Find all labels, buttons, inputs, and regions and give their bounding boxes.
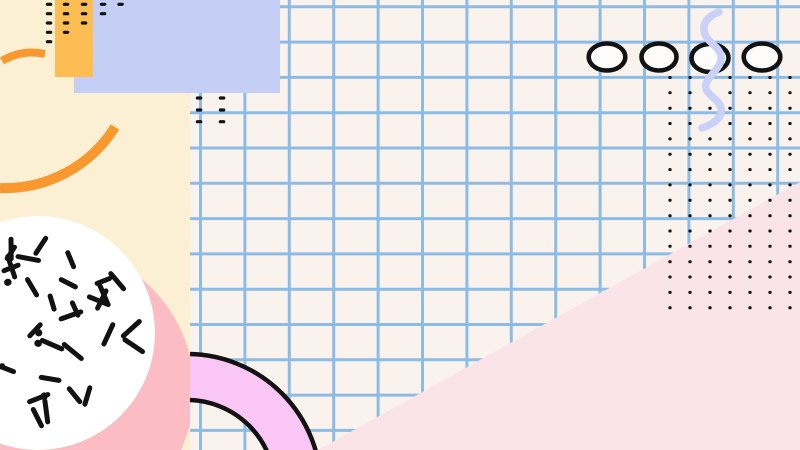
grid-dot xyxy=(708,291,711,294)
grid-dot xyxy=(788,306,791,309)
grid-dot xyxy=(748,183,751,186)
grid-dot xyxy=(688,306,691,309)
grid-dot xyxy=(748,230,751,233)
grid-dot xyxy=(708,276,711,279)
grid-dot xyxy=(668,291,671,294)
grid-dot xyxy=(768,245,771,248)
grid-dot xyxy=(748,91,751,94)
grid-dot xyxy=(688,137,691,140)
grid-dot xyxy=(728,230,731,233)
grid-dot xyxy=(708,183,711,186)
grid-dot xyxy=(708,107,711,110)
grid-dot xyxy=(788,168,791,171)
grid-dot xyxy=(728,168,731,171)
grid-dot xyxy=(668,260,671,263)
grid-dot xyxy=(708,245,711,248)
outlined-ellipse xyxy=(642,44,677,71)
grid-dot xyxy=(768,199,771,202)
corner-dot xyxy=(63,21,70,24)
grid-dot xyxy=(728,306,731,309)
grid-dot xyxy=(708,137,711,140)
grid-dot xyxy=(748,76,751,79)
grid-dot xyxy=(688,168,691,171)
memphis-abstract-background xyxy=(0,0,800,450)
sprinkle-dash xyxy=(41,377,59,380)
corner-dot xyxy=(63,3,70,6)
grid-dot xyxy=(688,91,691,94)
grid-dot xyxy=(768,230,771,233)
grid-dot xyxy=(728,137,731,140)
grid-dot xyxy=(788,291,791,294)
grid-dot xyxy=(668,91,671,94)
grid-dot xyxy=(668,76,671,79)
grid-dot xyxy=(728,91,731,94)
grid-dot xyxy=(768,153,771,156)
grid-dot xyxy=(668,137,671,140)
grid-dot xyxy=(668,107,671,110)
grid-dot xyxy=(688,107,691,110)
grid-dot xyxy=(688,214,691,217)
corner-dot xyxy=(81,3,88,6)
grid-dot xyxy=(768,276,771,279)
grid-dot xyxy=(688,183,691,186)
corner-dot xyxy=(117,3,124,6)
sprinkle-dash xyxy=(45,401,48,422)
corner-dot xyxy=(100,3,107,6)
grid-dot xyxy=(708,230,711,233)
corner-dot xyxy=(63,31,70,34)
grid-dot xyxy=(768,168,771,171)
grid-dot xyxy=(668,168,671,171)
grid-dot xyxy=(748,137,751,140)
grid-dot xyxy=(728,107,731,110)
grid-dot xyxy=(788,230,791,233)
corner-dot xyxy=(100,12,107,15)
cluster-dot xyxy=(219,96,226,99)
grid-dot xyxy=(748,306,751,309)
grid-dot xyxy=(768,76,771,79)
grid-dot xyxy=(788,183,791,186)
grid-dot xyxy=(788,276,791,279)
corner-dot xyxy=(46,12,53,15)
grid-dot xyxy=(748,153,751,156)
grid-dot xyxy=(728,153,731,156)
grid-dot xyxy=(668,214,671,217)
grid-dot xyxy=(728,183,731,186)
grid-dot xyxy=(788,122,791,125)
corner-dot xyxy=(46,3,53,6)
grid-dot xyxy=(748,291,751,294)
corner-dot xyxy=(81,12,88,15)
corner-dot xyxy=(46,31,53,34)
grid-dot xyxy=(788,137,791,140)
corner-dot xyxy=(63,12,70,15)
grid-dot xyxy=(728,260,731,263)
grid-dot xyxy=(668,122,671,125)
grid-dot xyxy=(688,122,691,125)
grid-dot xyxy=(668,230,671,233)
grid-dot xyxy=(788,245,791,248)
outlined-ellipse xyxy=(744,44,781,71)
cluster-dot xyxy=(219,108,226,111)
grid-dot xyxy=(728,276,731,279)
grid-dot xyxy=(768,291,771,294)
grid-dot xyxy=(788,214,791,217)
grid-dot xyxy=(708,260,711,263)
grid-dot xyxy=(688,260,691,263)
grid-dot xyxy=(688,245,691,248)
cluster-dot xyxy=(219,120,226,123)
grid-dot xyxy=(768,183,771,186)
grid-dot xyxy=(768,214,771,217)
grid-dot xyxy=(748,168,751,171)
background-scene xyxy=(0,0,800,450)
grid-dot xyxy=(708,199,711,202)
cluster-dot xyxy=(196,108,203,111)
grid-dot xyxy=(728,76,731,79)
grid-dot xyxy=(768,107,771,110)
corner-dot xyxy=(46,40,53,43)
grid-dot xyxy=(748,107,751,110)
grid-dot xyxy=(728,122,731,125)
grid-dot xyxy=(708,153,711,156)
grid-dot xyxy=(728,245,731,248)
grid-dot xyxy=(668,276,671,279)
grid-dot xyxy=(668,245,671,248)
grid-dot xyxy=(688,230,691,233)
grid-dot xyxy=(668,153,671,156)
grid-dot xyxy=(788,260,791,263)
grid-dot xyxy=(768,91,771,94)
grid-dot xyxy=(708,168,711,171)
grid-dot xyxy=(748,260,751,263)
grid-dot xyxy=(728,199,731,202)
corner-dot xyxy=(46,21,53,24)
grid-dot xyxy=(728,291,731,294)
grid-dot xyxy=(708,306,711,309)
grid-dot xyxy=(748,122,751,125)
grid-dot xyxy=(708,214,711,217)
grid-dot xyxy=(668,199,671,202)
grid-dot xyxy=(728,214,731,217)
grid-dot xyxy=(748,245,751,248)
corner-dot xyxy=(81,21,88,24)
grid-dot xyxy=(748,199,751,202)
grid-dot xyxy=(788,153,791,156)
grid-dot xyxy=(768,137,771,140)
grid-dot xyxy=(688,276,691,279)
grid-dot xyxy=(768,122,771,125)
cluster-dot xyxy=(196,120,203,123)
outlined-ellipse xyxy=(589,44,626,71)
amber-rectangle xyxy=(55,0,93,77)
grid-dot xyxy=(688,153,691,156)
grid-dot xyxy=(688,199,691,202)
grid-dot xyxy=(788,91,791,94)
grid-dot xyxy=(788,199,791,202)
grid-dot xyxy=(668,306,671,309)
grid-dot xyxy=(768,260,771,263)
grid-dot xyxy=(748,276,751,279)
grid-dot xyxy=(788,76,791,79)
cluster-dot xyxy=(196,96,203,99)
grid-dot xyxy=(688,291,691,294)
grid-dot xyxy=(688,76,691,79)
grid-dot xyxy=(668,183,671,186)
grid-dot xyxy=(788,107,791,110)
grid-dot xyxy=(768,306,771,309)
grid-dot xyxy=(748,214,751,217)
